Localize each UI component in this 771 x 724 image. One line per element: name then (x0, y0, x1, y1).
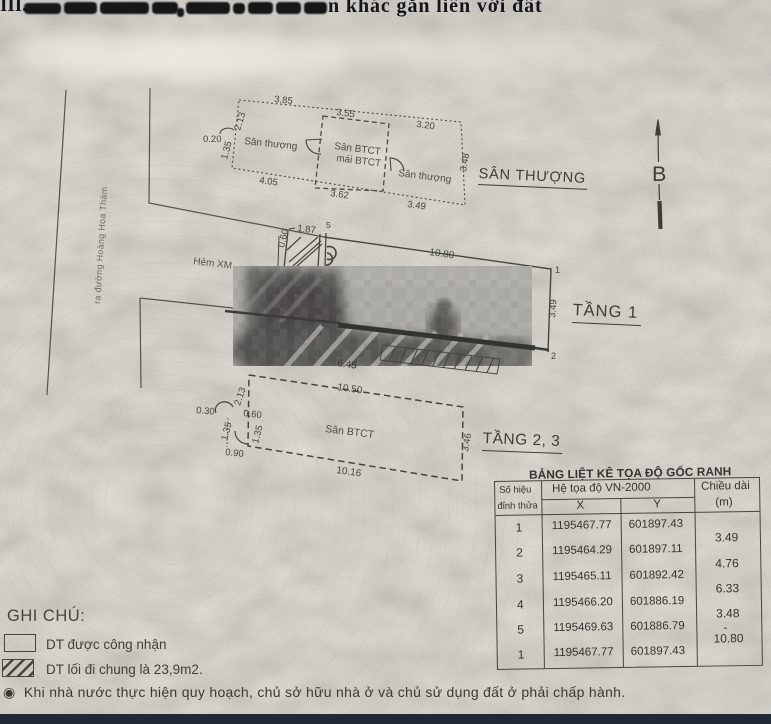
svg-text:0.30: 0.30 (196, 405, 215, 418)
svg-text:2: 2 (551, 351, 556, 361)
svg-text:0.60: 0.60 (243, 408, 263, 421)
svg-text:5: 5 (326, 220, 331, 230)
svg-text:0.90: 0.90 (225, 447, 245, 460)
svg-text:0.20: 0.20 (203, 134, 222, 145)
svg-text:B: B (652, 162, 666, 186)
svg-text:1.87: 1.87 (297, 223, 317, 236)
svg-text:1: 1 (555, 265, 560, 275)
svg-text:3.85: 3.85 (274, 94, 294, 107)
svg-text:3.55: 3.55 (336, 107, 356, 120)
svg-text:3.49: 3.49 (547, 299, 560, 318)
svg-text:3.20: 3.20 (416, 119, 436, 132)
